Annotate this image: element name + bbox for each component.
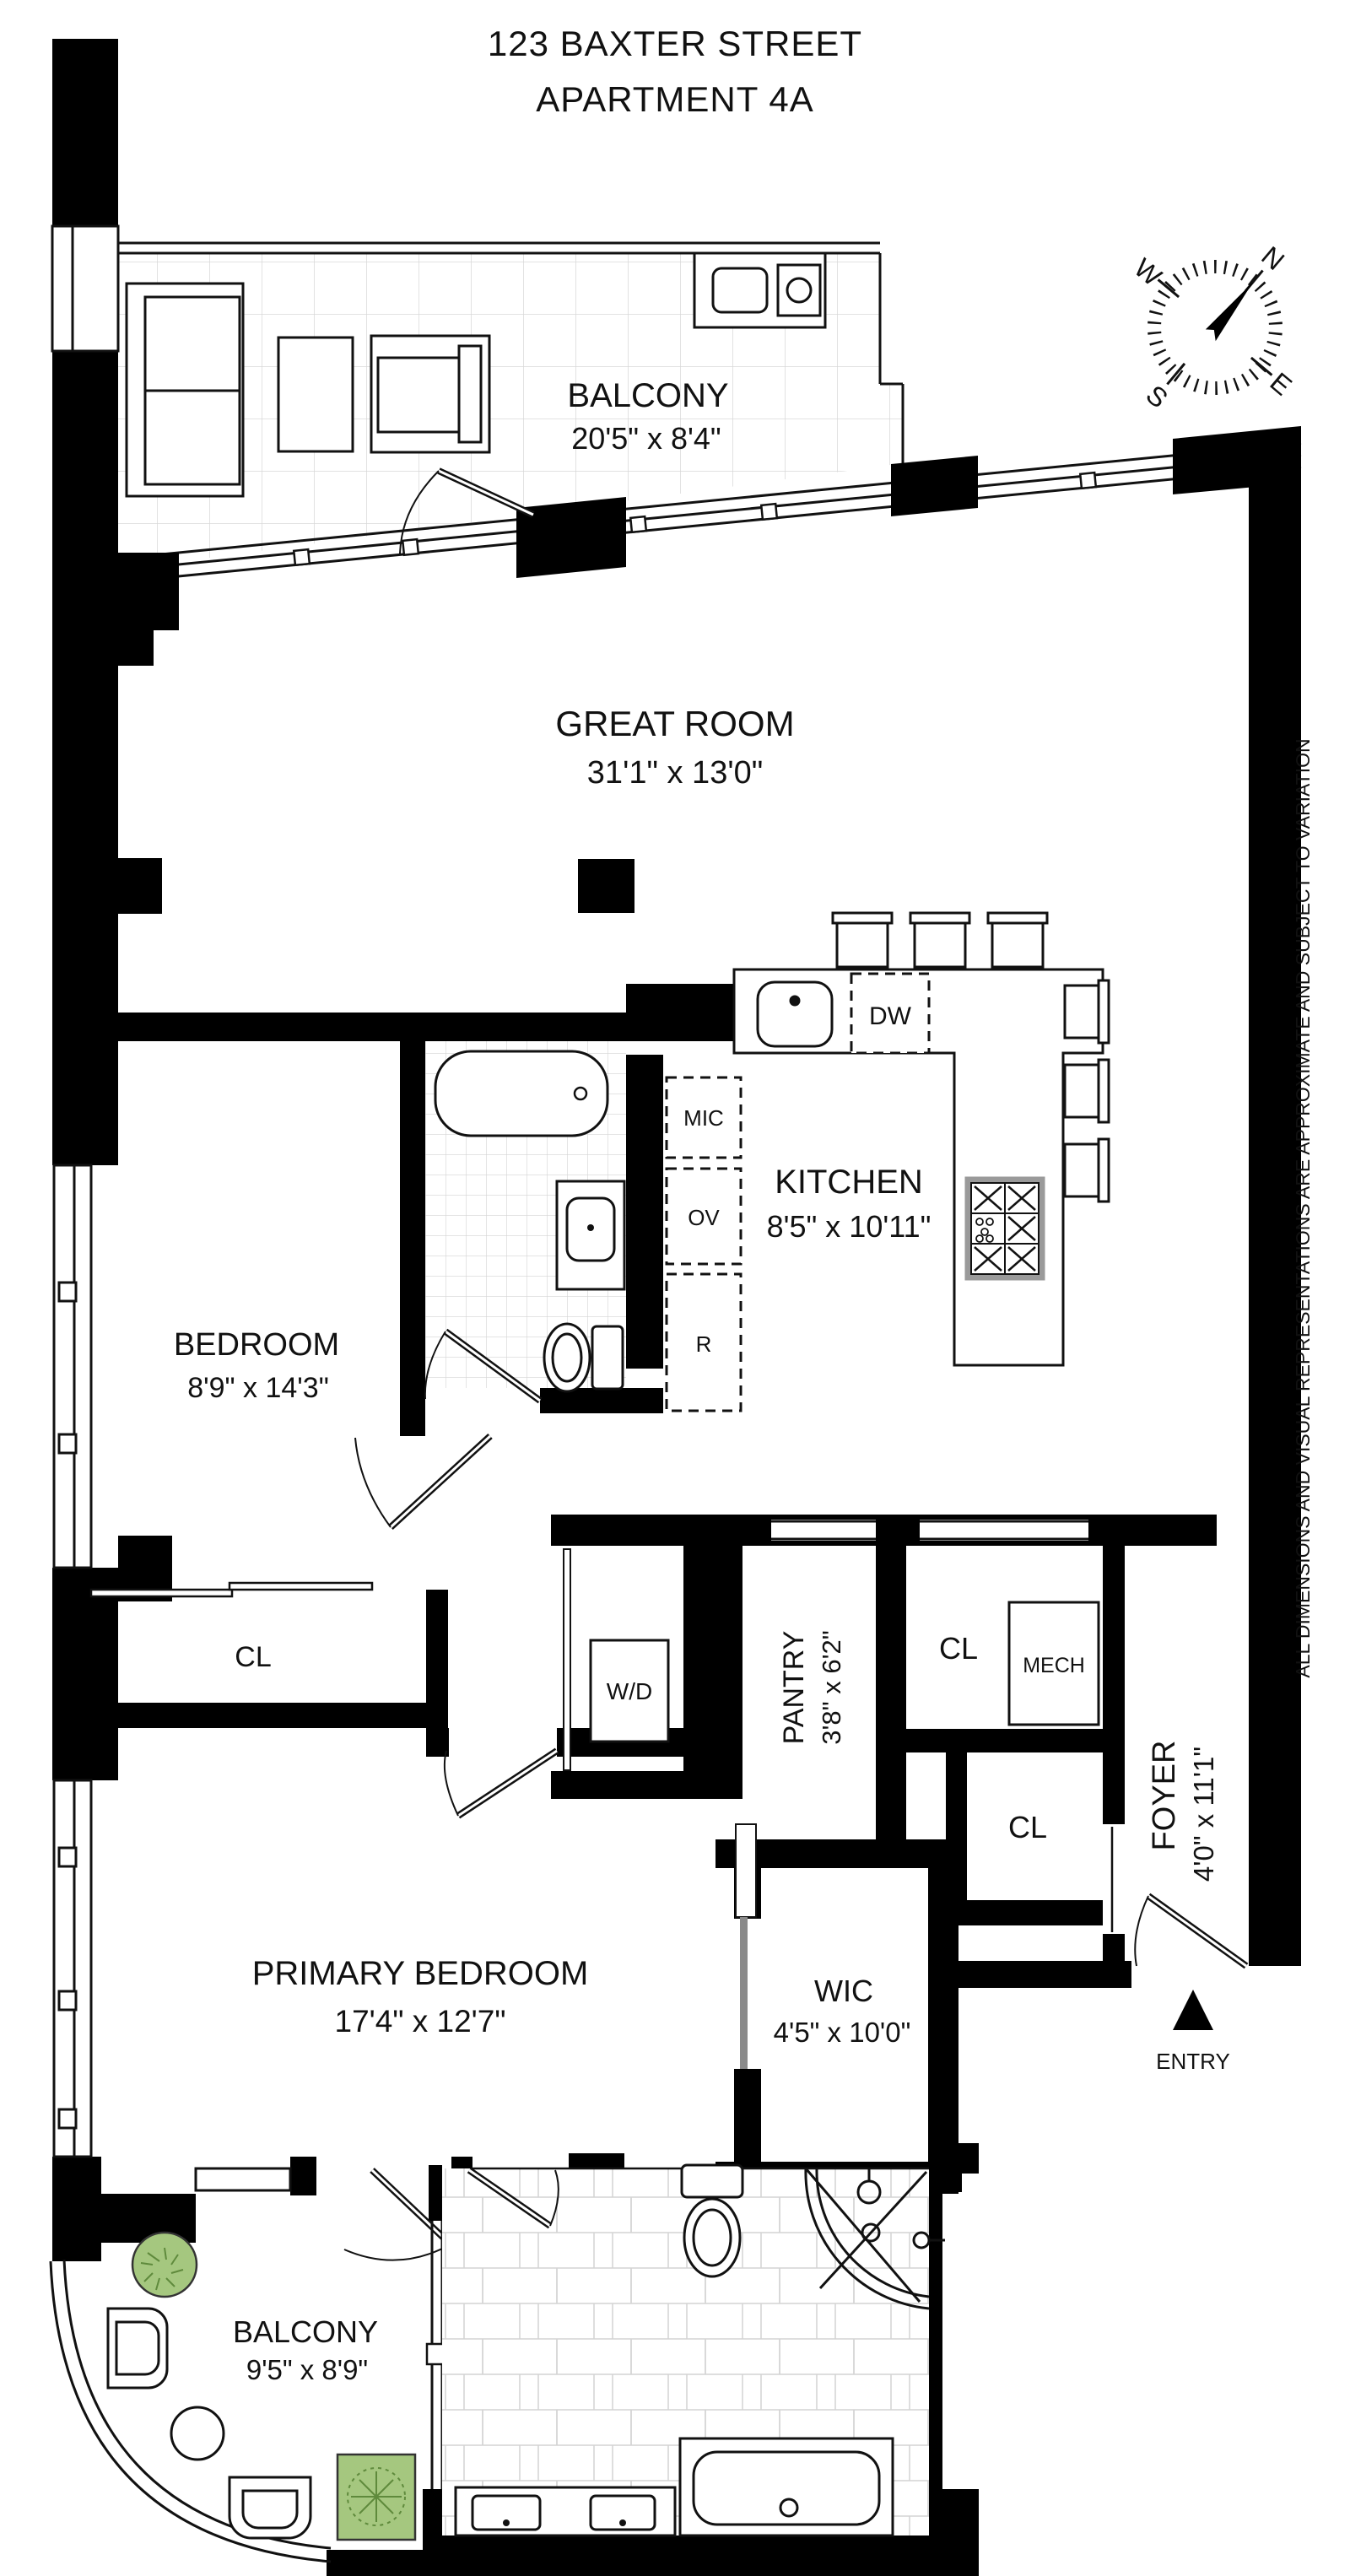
sofa <box>127 284 243 496</box>
wall-chunk <box>516 497 626 578</box>
wall-chunk <box>891 456 978 516</box>
refrigerator-label: R <box>696 1331 712 1357</box>
kitchen-name: KITCHEN <box>775 1164 923 1201</box>
floorplan-drawing: BALCONY 20'5" x 8'4" <box>0 0 1350 2576</box>
window-bedroom <box>54 1165 91 1568</box>
plant-round <box>132 2233 197 2297</box>
grill-counter <box>694 253 825 327</box>
armchair <box>371 336 489 452</box>
wic-name: WIC <box>814 1974 873 2008</box>
compass-w: W <box>1128 252 1168 293</box>
patio-chair-2 <box>229 2477 310 2538</box>
closet-mech: CL MECH <box>939 1602 1099 1725</box>
great-room: GREAT ROOM 31'1" x 13'0" <box>555 704 794 791</box>
foyer-dims: 4'0" x 11'1" <box>1188 1747 1219 1882</box>
toilet-small <box>544 1324 623 1391</box>
closet-mech-label: CL <box>939 1631 978 1666</box>
bathroom-primary <box>442 2165 945 2535</box>
bedroom-closet: CL <box>91 1583 372 1673</box>
balcony-top-dims: 20'5" x 8'4" <box>571 421 721 456</box>
entry-marker: ENTRY <box>1156 1990 1230 2074</box>
primary-bedroom-dims: 17'4" x 12'7" <box>335 2004 506 2039</box>
foyer-name: FOYER <box>1147 1741 1182 1851</box>
kitchen-dims: 8'5" x 10'11" <box>767 1209 931 1244</box>
vanity-small <box>557 1181 624 1289</box>
oven-label: OV <box>688 1205 720 1230</box>
foyer: FOYER 4'0" x 11'1" ENTRY <box>1135 1741 1246 2074</box>
kitchen: DW <box>667 913 1109 1411</box>
wic-pocket-door <box>740 1917 748 2069</box>
balcony-bottom-name: BALCONY <box>233 2314 378 2349</box>
plant-square <box>337 2454 415 2540</box>
pantry-name: PANTRY <box>778 1631 810 1745</box>
washer-dryer-label: W/D <box>607 1678 652 1704</box>
entry-arrow-icon <box>1173 1990 1213 2030</box>
primary-bedroom-door <box>445 1751 557 1816</box>
great-room-name: GREAT ROOM <box>555 704 794 743</box>
compass-icon: N E S W <box>1071 182 1350 469</box>
toilet-primary <box>682 2165 742 2276</box>
window-primary <box>54 1780 91 2157</box>
balcony-bottom: BALCONY 9'5" x 8'9" <box>51 2221 447 2562</box>
closet-foyer: CL <box>1008 1810 1047 1844</box>
bathtub-small <box>435 1051 607 1136</box>
microwave-label: MIC <box>683 1105 724 1131</box>
patio-chair-1 <box>108 2309 167 2388</box>
bathtub-primary <box>680 2438 893 2535</box>
mech-label: MECH <box>1023 1654 1085 1677</box>
patio-table <box>171 2407 224 2460</box>
bar-stools-right <box>1065 980 1109 1202</box>
bedroom-door <box>355 1436 490 1527</box>
appliance-column: MIC OV R <box>667 1077 741 1411</box>
balcony-bottom-dims: 9'5" x 8'9" <box>246 2354 368 2385</box>
balcony-top-name: BALCONY <box>567 377 728 414</box>
bathroom-small <box>425 1041 626 1401</box>
dishwasher-label: DW <box>869 1002 912 1030</box>
cooktop <box>968 1180 1042 1277</box>
kitchen-sink <box>758 982 832 1046</box>
wic-dims: 4'5" x 10'0" <box>774 2017 911 2048</box>
pantry-dims: 3'8" x 6'2" <box>817 1630 846 1745</box>
disclaimer-text: ALL DIMENSIONS AND VISUAL REPRESENTATION… <box>1292 738 1314 1677</box>
entry-label: ENTRY <box>1156 2049 1230 2074</box>
compass-needle <box>1204 278 1260 341</box>
entry-door <box>1135 1896 1246 1966</box>
wic-pocket-door-panel <box>736 1824 756 1917</box>
great-room-dims: 31'1" x 13'0" <box>587 755 763 791</box>
bar-stools-top <box>833 913 1047 967</box>
pantry: PANTRY 3'8" x 6'2" <box>778 1630 846 1745</box>
window-primary-south <box>196 2168 290 2190</box>
bedroom-dims: 8'9" x 14'3" <box>187 1372 329 1404</box>
closet-foyer-label: CL <box>1008 1810 1047 1844</box>
bedroom-closet-label: CL <box>235 1641 271 1673</box>
primary-bedroom-name: PRIMARY BEDROOM <box>252 1955 589 1992</box>
utility-core: W/D PANTRY 3'8" x 6'2" CL MECH CL <box>564 1549 1099 1844</box>
window-balcony-west <box>52 226 118 351</box>
floorplan-page: 123 BAXTER STREET APARTMENT 4A <box>0 0 1350 2576</box>
coffee-table <box>278 338 353 451</box>
vanity-double <box>456 2487 675 2535</box>
dishwasher: DW <box>851 974 929 1053</box>
bedroom-name: BEDROOM <box>174 1327 339 1363</box>
